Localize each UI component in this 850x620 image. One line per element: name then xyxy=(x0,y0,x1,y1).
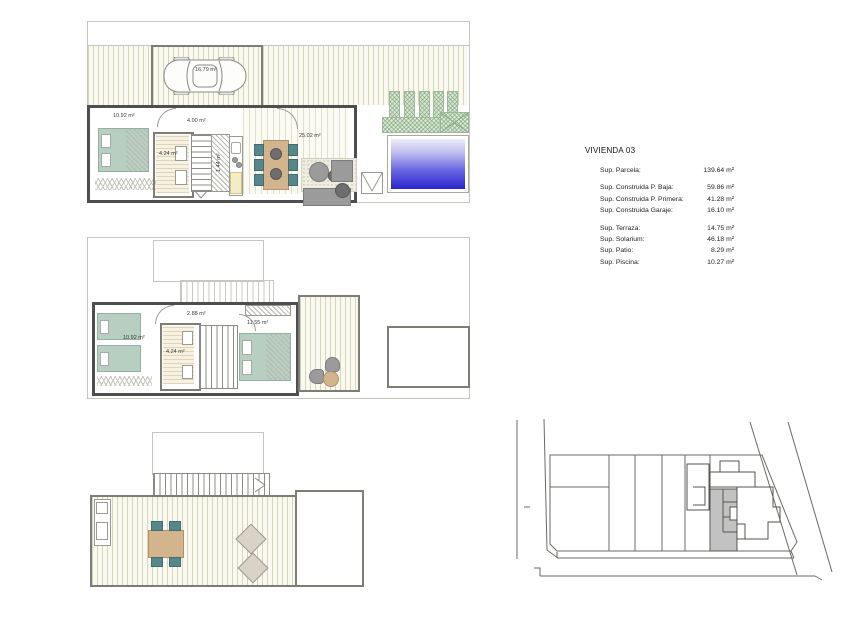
roof-opening xyxy=(387,326,470,388)
sink xyxy=(175,170,187,185)
dining-chair xyxy=(254,144,264,156)
pillow xyxy=(101,134,111,148)
solarium-chair xyxy=(169,521,181,531)
solarium-chair xyxy=(151,557,163,567)
living-area-label: 25.02 m² xyxy=(299,133,321,139)
plan-first-floor: 10.92 m² 2.88 m² 4.24 m² 11.55 m² xyxy=(87,235,470,400)
stairs xyxy=(191,134,213,192)
plan-ground-floor: 16.79 m² 10.92 m² 4.24 m² 4.00 m² 1.44 m… xyxy=(87,20,470,205)
armchair xyxy=(331,160,353,182)
void-over-garage xyxy=(153,240,264,282)
pillow xyxy=(100,352,109,366)
bedroom-area-label: 10.92 m² xyxy=(113,113,135,119)
info-row: Sup. Piscina:10.27 m² xyxy=(600,257,734,268)
pool-water xyxy=(391,139,465,189)
floor-lamp xyxy=(335,183,350,198)
stairs-arrow xyxy=(255,477,267,493)
dining-chair xyxy=(254,159,264,171)
bed-throw xyxy=(266,334,290,380)
info-row: Sup. Patio:8.29 m² xyxy=(600,245,734,256)
wardrobe xyxy=(245,305,291,316)
pillow xyxy=(242,340,252,355)
terrace-table xyxy=(323,371,339,387)
kitchen-sink xyxy=(231,142,241,154)
table-setting xyxy=(270,148,282,160)
dining-chair xyxy=(288,144,298,156)
pillow xyxy=(101,153,111,167)
stairs-arrow xyxy=(193,190,209,199)
pergola-finger xyxy=(389,91,400,120)
parcel-side-line-right xyxy=(469,21,470,45)
pillow xyxy=(100,320,109,334)
pool xyxy=(387,135,469,193)
hall-area-label: 4.00 m² xyxy=(187,118,206,124)
outdoor-kitchen-top xyxy=(96,502,108,514)
stairs xyxy=(199,325,238,389)
info-row: Sup. Construida P. Baja:59.86 m² xyxy=(600,182,734,193)
void-box xyxy=(152,432,264,475)
parcel-side-line-left xyxy=(87,21,88,45)
bed-twin xyxy=(97,345,141,372)
dining-chair xyxy=(254,174,264,186)
solarium-chair xyxy=(151,521,163,531)
solarium-chair xyxy=(169,557,181,567)
closet-area-label: 1.44 m² xyxy=(216,153,222,172)
sink xyxy=(182,365,193,379)
pergola-finger xyxy=(404,91,415,120)
block-outline xyxy=(550,455,797,551)
car-icon xyxy=(161,57,249,95)
bed-double xyxy=(239,333,291,381)
road-left-inner xyxy=(544,419,558,558)
armchair-round xyxy=(309,162,329,182)
site-plan xyxy=(510,412,840,607)
dining-chair xyxy=(288,174,298,186)
info-row: Sup. Parcela:139.64 m² xyxy=(600,165,734,176)
side-roof xyxy=(295,490,364,587)
outdoor-kitchen-sink xyxy=(96,522,108,540)
planter-x-box xyxy=(440,112,469,133)
bedroom-rug xyxy=(95,178,157,190)
hall-area-label: 2.88 m² xyxy=(187,311,206,317)
info-row: Sup. Terraza:14.75 m² xyxy=(600,223,734,234)
stairs-ghost xyxy=(180,280,274,304)
bathroom-area-label: 4.24 m² xyxy=(159,151,178,157)
drawing-sheet: 16.79 m² 10.92 m² 4.24 m² 4.00 m² 1.44 m… xyxy=(0,0,850,620)
dining-chair xyxy=(288,159,298,171)
terrace-chair xyxy=(325,357,340,372)
terrace-chair xyxy=(309,369,324,384)
dwelling-title: VIVIENDA 03 xyxy=(585,146,735,155)
pillow xyxy=(242,360,252,375)
pergola-finger xyxy=(419,91,430,120)
bed-double xyxy=(98,128,149,172)
bed-throw xyxy=(126,129,148,171)
bedroom-rug xyxy=(97,376,152,386)
parcel-front-line xyxy=(87,21,470,22)
solarium-deck xyxy=(90,495,297,587)
solarium-table xyxy=(148,530,184,558)
road-right-outer xyxy=(788,422,832,572)
bedroom-area-label: 10.92 m² xyxy=(123,335,145,341)
outdoor-shower xyxy=(361,172,383,194)
info-row: Sup. Construida P. Primera:41.28 m² xyxy=(600,194,734,205)
toilet xyxy=(182,331,193,345)
kitchen-cabinet xyxy=(230,172,242,194)
table-setting xyxy=(270,168,282,180)
info-row: Sup. Construida Garaje:16.10 m² xyxy=(600,205,734,216)
plan-solarium xyxy=(87,425,470,605)
kitchen-burner xyxy=(236,162,242,168)
info-panel: VIVIENDA 03 Sup. Parcela:139.64 m² Sup. … xyxy=(585,146,735,268)
bathroom-area-label: 4.24 m² xyxy=(166,349,185,355)
garage-area-label: 16.79 m² xyxy=(195,67,217,73)
info-row: Sup. Solarium:46.18 m² xyxy=(600,234,734,245)
